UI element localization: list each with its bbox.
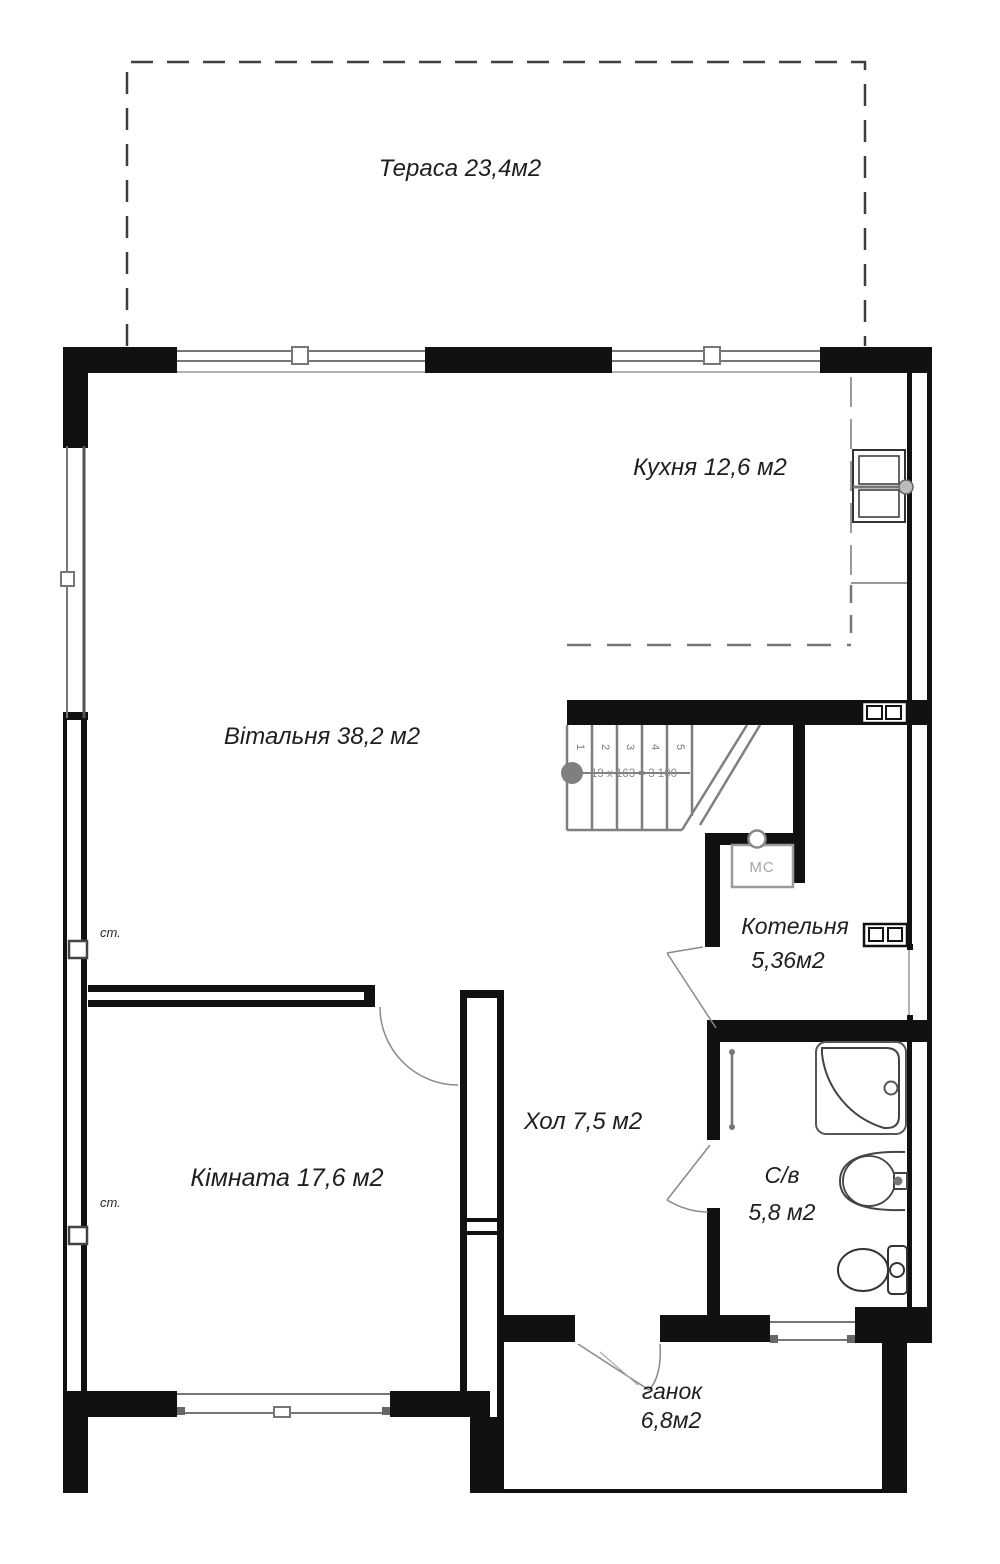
left-wall-outer-face bbox=[63, 718, 67, 1493]
boiler-pipe-icon bbox=[749, 831, 766, 848]
window-bath-tick-right bbox=[847, 1335, 855, 1343]
window-bath-tick-left bbox=[770, 1335, 778, 1343]
kitchen-label: Кухня 12,6 м2 bbox=[633, 454, 787, 481]
door-boiler-swing bbox=[667, 947, 703, 953]
window-top2-mullion bbox=[704, 347, 720, 364]
right-wall-jog bbox=[855, 1307, 932, 1343]
boiler-west-wall bbox=[705, 833, 720, 947]
towel-radiator bbox=[729, 1049, 735, 1130]
vent-cell-right bbox=[886, 706, 901, 719]
sink-tap-icon bbox=[899, 480, 913, 494]
vent-duct-boiler bbox=[864, 924, 907, 946]
room-labels: Тераса 23,4м2 Кухня 12,6 м2 Вітальня 38,… bbox=[190, 155, 848, 1433]
column-label-upper: ст. bbox=[100, 925, 121, 940]
sink-bowl-top bbox=[859, 456, 899, 484]
living-room-label: Вітальня 38,2 м2 bbox=[224, 723, 420, 750]
column-marker-upper bbox=[69, 941, 87, 958]
boiler-room-area: 5,36м2 bbox=[751, 947, 825, 973]
bottom-wall-pier-right bbox=[390, 1391, 490, 1417]
entrance-pier-right bbox=[660, 1315, 770, 1342]
living-room-wall-north-face bbox=[88, 985, 375, 992]
stairs-step-number: 2 bbox=[599, 744, 611, 750]
stairs-step-number: 1 bbox=[574, 744, 586, 750]
door-bath-swing bbox=[667, 1200, 708, 1212]
stairs-dimension-text: 19 x 163 = 3 100 bbox=[591, 768, 677, 780]
porch-east-wall bbox=[882, 1343, 907, 1493]
boiler-bath-wall bbox=[707, 1020, 932, 1042]
boiler-unit-label: МС bbox=[749, 859, 774, 876]
basin-tap-icon bbox=[894, 1177, 903, 1186]
room-hall-wall-joint-upper bbox=[460, 1218, 504, 1222]
room-hall-wall-top-cap bbox=[460, 990, 504, 998]
entrance-door-leaf bbox=[578, 1344, 649, 1390]
window-top1-mullion bbox=[292, 347, 308, 364]
window-bottom-tick-left bbox=[177, 1407, 185, 1415]
porch-area: 6,8м2 bbox=[641, 1407, 702, 1433]
sink-bowl-bottom bbox=[859, 490, 899, 517]
window-left-mullion bbox=[61, 572, 74, 586]
terrace-label: Тераса 23,4м2 bbox=[379, 155, 541, 182]
bathroom-area: 5,8 м2 bbox=[749, 1199, 816, 1225]
left-wall-inner-face bbox=[81, 718, 87, 1493]
top-wall-pier-right bbox=[820, 347, 932, 373]
toilet-button-icon bbox=[890, 1263, 904, 1277]
hall-label: Хол 7,5 м2 bbox=[523, 1108, 642, 1135]
window-bottom-mullion bbox=[274, 1407, 290, 1417]
vent-cell-left bbox=[867, 706, 882, 719]
stairs-step-number: 4 bbox=[649, 744, 661, 750]
stair-boiler-wall bbox=[793, 725, 805, 883]
bath-west-wall-upper bbox=[707, 1042, 720, 1140]
wall-columns: ст. ст. bbox=[69, 925, 121, 1244]
room-label: Кімната 17,6 м2 bbox=[190, 1164, 383, 1192]
shower bbox=[816, 1042, 906, 1134]
right-wall-outer-face bbox=[927, 347, 932, 1307]
left-wall-corner bbox=[63, 347, 88, 446]
terrace-dashed-boundary bbox=[127, 62, 865, 346]
door-living-to-room bbox=[380, 1007, 458, 1085]
kitchen-sink bbox=[853, 450, 913, 522]
radiator-end-top bbox=[729, 1049, 735, 1055]
bottom-left-corner bbox=[63, 1391, 88, 1493]
stairs-step-number: 5 bbox=[674, 744, 686, 750]
room-hall-wall-west-face bbox=[460, 990, 467, 1417]
toilet bbox=[838, 1246, 907, 1294]
porch-bottom-edge bbox=[470, 1489, 907, 1493]
entrance-pier-left bbox=[504, 1315, 575, 1342]
stairs-break-line-2 bbox=[700, 725, 760, 825]
room-hall-wall-east-face bbox=[497, 990, 504, 1417]
stairs-step-number: 3 bbox=[624, 744, 636, 750]
porch-leader-line bbox=[600, 1352, 638, 1385]
floor-plan: 1 2 3 4 5 19 x 163 = 3 100 МС bbox=[0, 0, 1000, 1564]
living-room-wall-south-face bbox=[88, 1000, 375, 1007]
door-boiler-leaf bbox=[667, 953, 716, 1028]
washbasin bbox=[840, 1152, 907, 1210]
vent-duct-upper bbox=[862, 702, 907, 723]
stairs: 1 2 3 4 5 19 x 163 = 3 100 bbox=[561, 725, 760, 830]
right-wall-inner-face-upper bbox=[907, 373, 912, 948]
room-hall-wall-joint-lower bbox=[460, 1231, 504, 1235]
basin-bowl bbox=[843, 1156, 895, 1206]
vent-cell-left bbox=[869, 928, 883, 941]
stairs-start-marker bbox=[561, 762, 583, 784]
bath-west-wall-lower bbox=[707, 1208, 720, 1317]
bathroom-label: С/в bbox=[764, 1162, 799, 1188]
vent-cell-right bbox=[888, 928, 902, 941]
floor-plan-drawing: 1 2 3 4 5 19 x 163 = 3 100 МС bbox=[0, 0, 1000, 1564]
top-wall-pier-middle bbox=[425, 347, 612, 373]
column-label-lower: ст. bbox=[100, 1195, 121, 1210]
radiator-end-bottom bbox=[729, 1124, 735, 1130]
shower-drain-icon bbox=[885, 1082, 898, 1095]
column-marker-lower bbox=[69, 1227, 87, 1244]
toilet-bowl bbox=[838, 1249, 888, 1291]
interior-walls bbox=[88, 377, 932, 1417]
porch-west-wall bbox=[470, 1417, 504, 1493]
boiler-room-label: Котельня bbox=[741, 913, 849, 939]
door-bath-leaf bbox=[667, 1145, 710, 1200]
terrace-outline bbox=[127, 62, 865, 346]
living-room-wall-cap bbox=[364, 985, 375, 1007]
porch-label: ганок bbox=[642, 1378, 703, 1404]
window-bottom-tick-right bbox=[382, 1407, 390, 1415]
